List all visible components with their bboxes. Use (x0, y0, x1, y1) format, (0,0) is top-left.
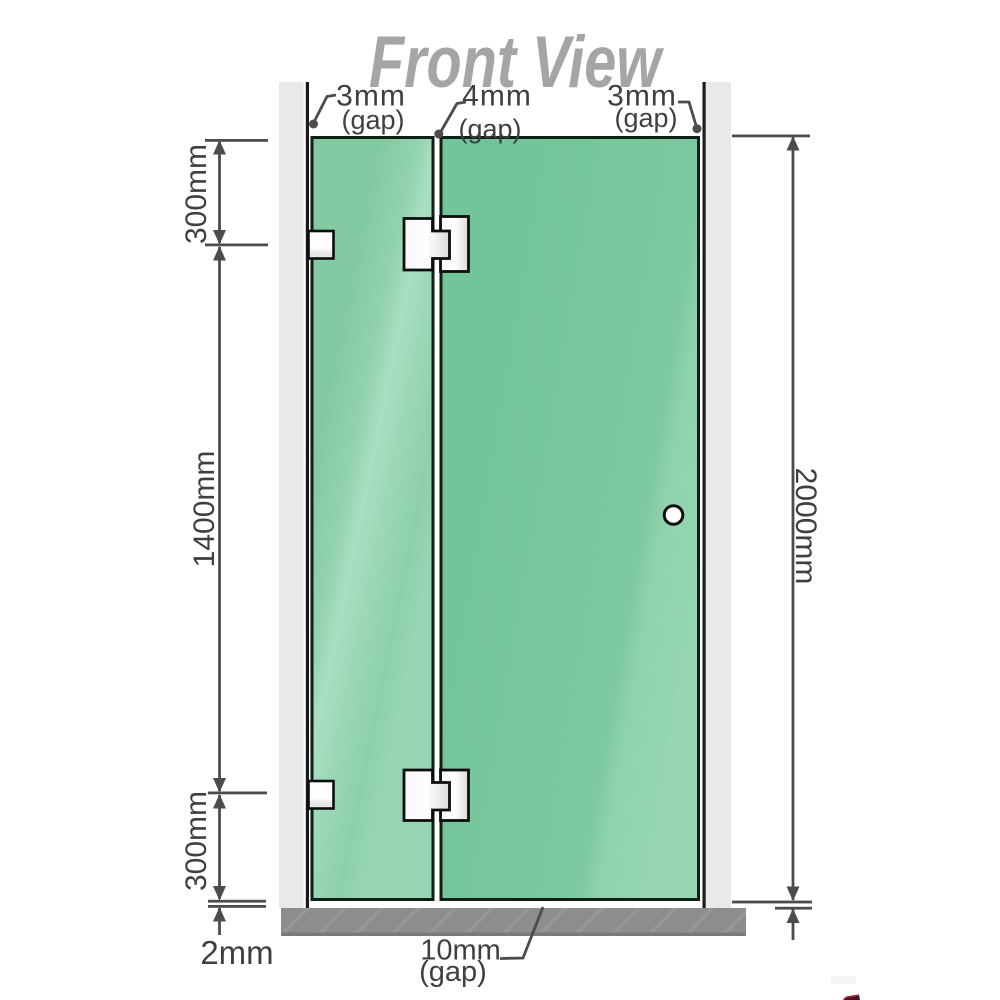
svg-text:(gap): (gap) (341, 105, 404, 135)
svg-text:2000mm: 2000mm (789, 468, 822, 585)
svg-text:1400mm: 1400mm (188, 451, 221, 568)
svg-text:2mm: 2mm (200, 934, 273, 971)
svg-text:(gap): (gap) (419, 956, 487, 988)
svg-text:(gap): (gap) (458, 114, 521, 144)
svg-text:300mm: 300mm (180, 144, 213, 244)
svg-text:4mm: 4mm (462, 80, 532, 113)
svg-text:(gap): (gap) (614, 103, 677, 133)
svg-text:300mm: 300mm (180, 791, 213, 891)
